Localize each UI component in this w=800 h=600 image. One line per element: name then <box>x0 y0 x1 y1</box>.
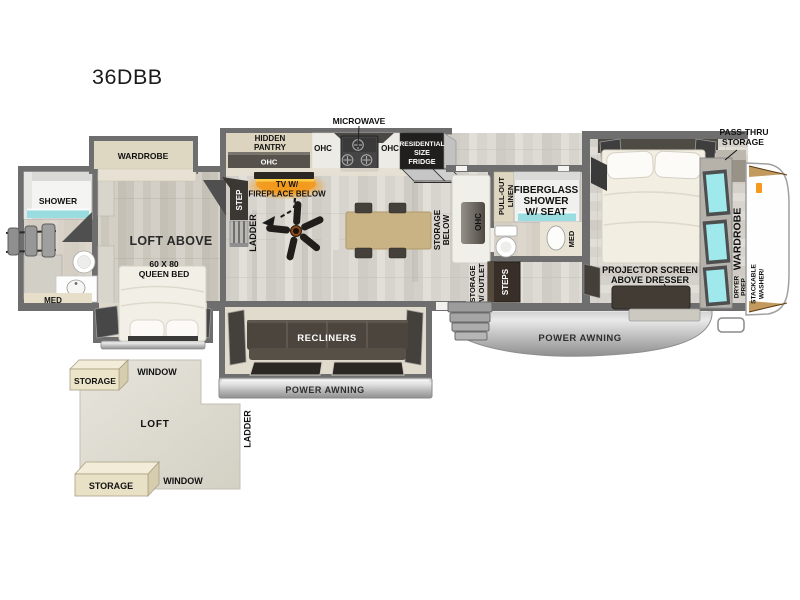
svg-text:STEP: STEP <box>235 189 244 211</box>
svg-text:LADDER: LADDER <box>243 410 253 448</box>
svg-text:WARDROBE: WARDROBE <box>732 208 744 270</box>
svg-text:OHC: OHC <box>261 158 278 167</box>
svg-text:WINDOW: WINDOW <box>137 367 177 377</box>
svg-text:STEPS: STEPS <box>501 268 510 295</box>
svg-text:FIBERGLASS: FIBERGLASS <box>514 185 579 196</box>
svg-text:OHC: OHC <box>474 213 483 231</box>
svg-text:SHOWER: SHOWER <box>39 196 77 206</box>
svg-text:HIDDEN: HIDDEN <box>255 134 286 143</box>
svg-text:RECLINERS: RECLINERS <box>297 333 356 344</box>
svg-text:WASHER/: WASHER/ <box>759 269 766 300</box>
svg-text:LADDER: LADDER <box>248 214 258 252</box>
svg-text:60 X 80: 60 X 80 <box>149 259 179 269</box>
svg-text:BELOW: BELOW <box>442 214 451 245</box>
svg-text:STORAGE: STORAGE <box>468 266 477 303</box>
svg-text:QUEEN BED: QUEEN BED <box>139 269 190 279</box>
svg-text:PANTRY: PANTRY <box>254 143 287 152</box>
svg-text:TV W/: TV W/ <box>276 180 299 189</box>
svg-text:SIZE: SIZE <box>414 148 430 157</box>
svg-text:RESIDENTIAL: RESIDENTIAL <box>399 141 444 148</box>
svg-text:STACKABLE: STACKABLE <box>751 264 758 304</box>
svg-text:POWER AWNING: POWER AWNING <box>538 333 621 344</box>
svg-text:DRYER: DRYER <box>734 275 741 298</box>
svg-text:36DBB: 36DBB <box>92 65 163 89</box>
svg-text:STORAGE: STORAGE <box>89 481 133 491</box>
svg-text:W/ SEAT: W/ SEAT <box>526 207 567 218</box>
svg-text:ABOVE DRESSER: ABOVE DRESSER <box>611 275 690 285</box>
svg-text:WINDOW: WINDOW <box>163 476 203 486</box>
svg-text:STORAGE: STORAGE <box>433 209 442 250</box>
svg-text:WARDROBE: WARDROBE <box>118 151 169 161</box>
svg-text:STORAGE: STORAGE <box>74 376 116 386</box>
svg-text:OHC: OHC <box>381 144 399 153</box>
svg-text:PULL-OUT: PULL-OUT <box>497 177 506 215</box>
svg-text:STORAGE: STORAGE <box>722 137 764 147</box>
svg-text:POWER AWNING: POWER AWNING <box>285 385 364 395</box>
svg-text:SHOWER: SHOWER <box>524 196 570 207</box>
svg-text:LOFT: LOFT <box>140 419 169 430</box>
svg-text:FRIDGE: FRIDGE <box>408 157 435 166</box>
svg-text:W/ OUTLET: W/ OUTLET <box>477 263 486 305</box>
svg-text:MED: MED <box>567 230 576 247</box>
svg-text:PROJECTOR SCREEN: PROJECTOR SCREEN <box>602 265 698 275</box>
svg-text:PASS-THRU: PASS-THRU <box>720 127 769 137</box>
svg-text:LOFT ABOVE: LOFT ABOVE <box>129 234 212 248</box>
svg-text:MICROWAVE: MICROWAVE <box>333 116 386 126</box>
svg-text:FIREPLACE BELOW: FIREPLACE BELOW <box>248 190 326 199</box>
svg-text:OHC: OHC <box>314 144 332 153</box>
